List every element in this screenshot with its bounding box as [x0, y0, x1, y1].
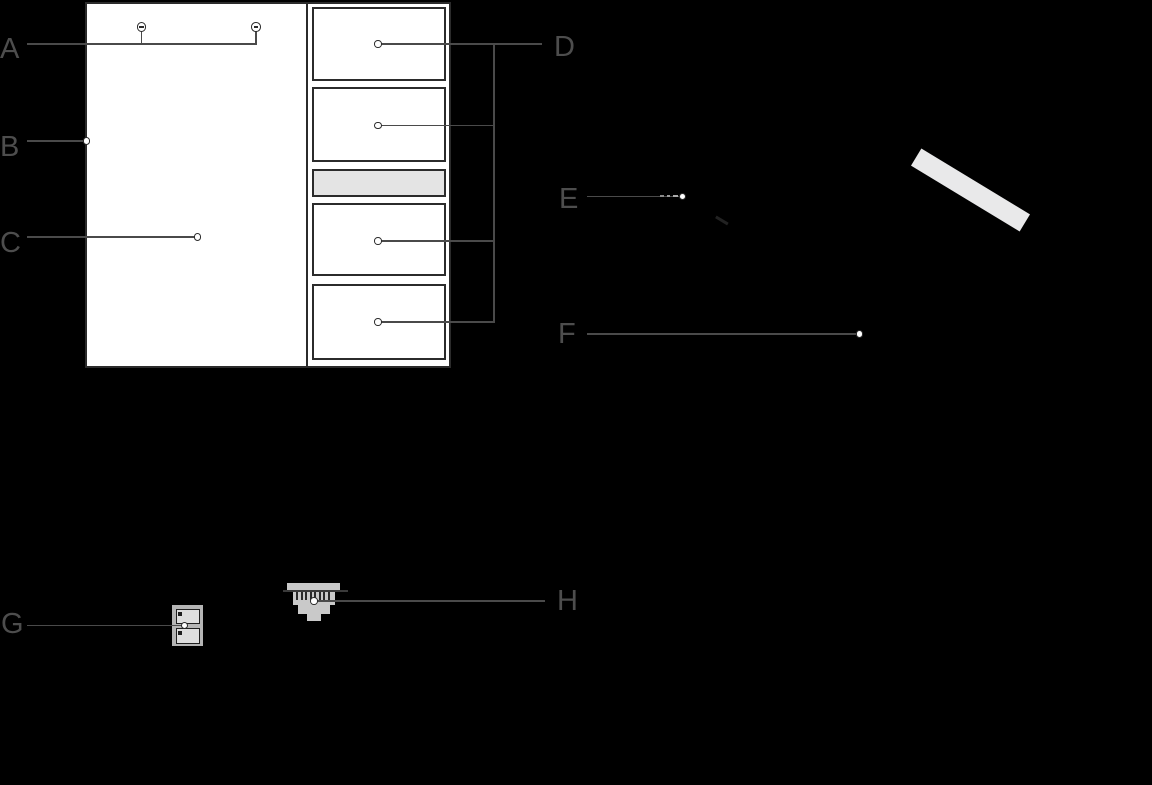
rj45-pin-3: [305, 592, 307, 600]
screw-stub-line-2: [255, 31, 257, 44]
callout-line-h: [314, 600, 545, 602]
bracket-line-module-3: [378, 240, 494, 242]
callout-line-a: [27, 43, 257, 45]
leader-dot-e: [679, 193, 687, 201]
screw-slot-icon: [254, 26, 259, 28]
rj45-pin-8: [328, 592, 330, 600]
callout-line-c: [27, 236, 198, 238]
leader-dot-module-1: [374, 40, 382, 48]
callout-line-d: [378, 43, 542, 45]
leader-dot-b: [83, 137, 91, 145]
callout-line-g: [27, 625, 184, 627]
blank-slot: [312, 169, 446, 197]
leader-dot-module-3: [374, 237, 382, 245]
rj45-pin-2: [301, 592, 303, 600]
rj45-pin-6: [319, 592, 321, 600]
leader-dot-f: [856, 330, 864, 338]
screw-icon-1: [137, 22, 147, 32]
leader-dot-module-2: [374, 122, 382, 130]
terminal-contact-1: [178, 612, 182, 616]
callout-bracket-d: [493, 43, 495, 323]
screw-slot-icon: [139, 26, 144, 28]
callout-label-b: B: [0, 133, 19, 162]
rj45-body-mid: [298, 605, 330, 614]
callout-label-a: A: [0, 35, 19, 64]
bracket-line-module-4: [378, 321, 494, 323]
terminal-contact-2: [178, 631, 182, 635]
leader-dot-module-4: [374, 318, 382, 326]
rj45-pin-7: [323, 592, 325, 600]
panel-divider: [306, 4, 308, 366]
screw-icon-2: [251, 22, 261, 32]
rj45-pin-1: [296, 592, 298, 600]
callout-line-f: [587, 333, 859, 335]
pin-tip-dash-2: [667, 195, 670, 197]
leader-dot-c: [194, 233, 202, 241]
leader-dot-g: [181, 622, 189, 630]
callout-label-h: H: [557, 587, 578, 616]
bracket-line-module-2: [378, 125, 494, 127]
callout-line-b: [27, 140, 87, 142]
callout-label-c: C: [0, 229, 21, 258]
pin-body: [715, 216, 728, 225]
diagram-canvas: A B C D E F G H: [0, 0, 1152, 785]
callout-label-d: D: [554, 33, 575, 62]
rj45-body-clip: [307, 614, 321, 622]
callout-label-g: G: [1, 610, 24, 639]
pin-tip-dash-3: [673, 195, 678, 197]
label-strip-icon: [911, 149, 1030, 232]
callout-label-f: F: [558, 320, 576, 349]
pin-tip-dash-1: [660, 195, 664, 196]
callout-label-e: E: [559, 185, 578, 214]
screw-stub-line-1: [141, 31, 143, 44]
leader-dot-h: [310, 597, 318, 605]
